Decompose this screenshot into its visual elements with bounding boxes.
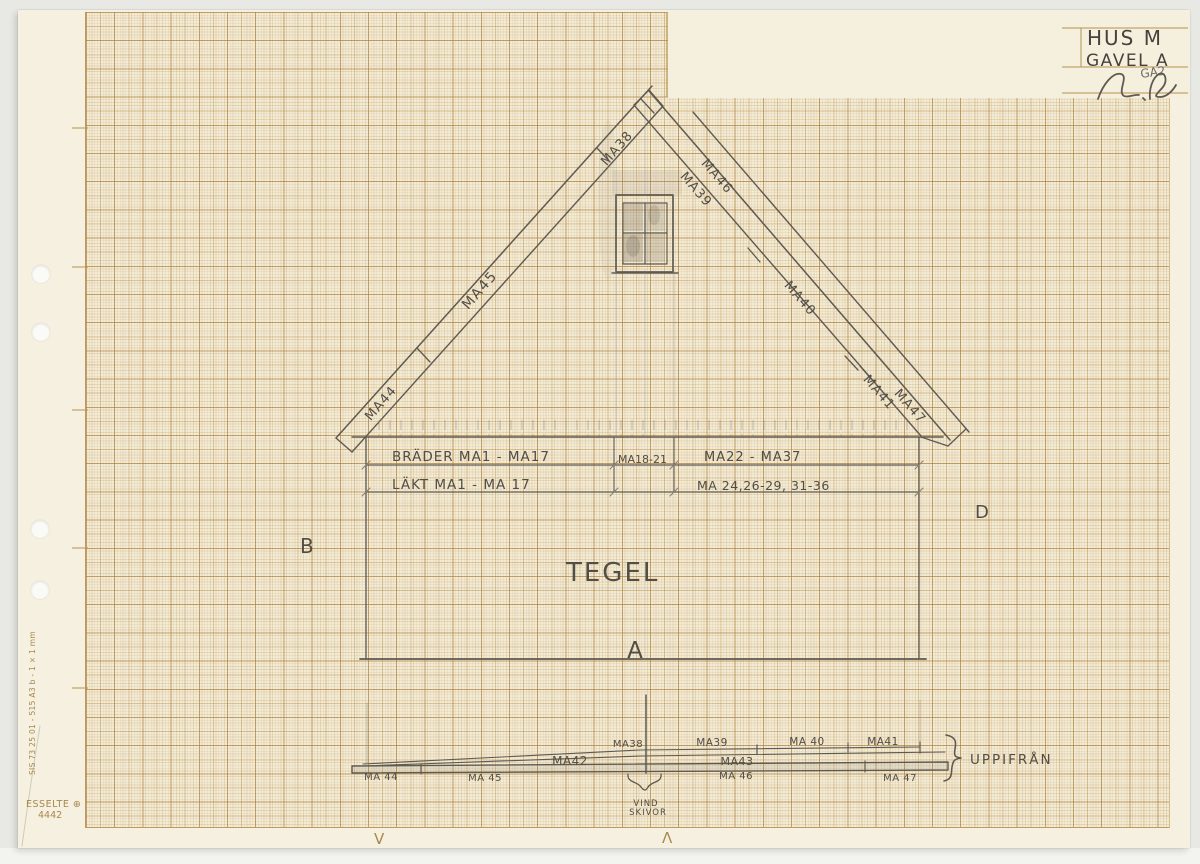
plan-label-ma41: MA41 (867, 736, 899, 748)
scanned-drawing-sheet: V Λ SIS 73 25 01 - 515 A3 b - 1 × 1 mm E… (0, 0, 1200, 864)
label-brader-row: BRÄDER MA1 - MA17 (392, 447, 550, 465)
plan-label-ma39: MA39 (696, 737, 728, 749)
plan-view: MA38 MA39 MA 40 MA41 MA42 MA43 MA 44 MA … (352, 695, 1053, 818)
label-ma40-roof: MA40 (781, 278, 819, 319)
plan-label-ma40: MA 40 (789, 736, 824, 748)
plan-label-ma46: MA 46 (719, 771, 753, 782)
label-ma45-roof: MA45 (459, 268, 501, 313)
plan-label-ma38: MA38 (613, 739, 643, 750)
drawing-overlay: V Λ SIS 73 25 01 - 515 A3 b - 1 × 1 mm E… (0, 0, 1200, 864)
label-tegel: TEGEL (565, 558, 659, 588)
label-ma22-37: MA22 - MA37 (704, 450, 801, 465)
title-block: HUS M GAVEL A GA2 (1086, 26, 1176, 100)
plan-view-label: UPPIFRÅN (970, 751, 1053, 768)
plan-label-ma47: MA 47 (883, 773, 917, 784)
fold-mark-right: Λ (662, 829, 673, 847)
board-end-hatching (368, 420, 918, 437)
title-line1: HUS M (1087, 26, 1163, 50)
label-ma24-36: MA 24,26-29, 31-36 (697, 478, 830, 493)
plan-note-line2: SKIVOR (629, 808, 667, 818)
attic-window (598, 120, 682, 280)
marker-a: A (627, 638, 643, 664)
label-ma41-roof: MA41 (860, 372, 898, 413)
marker-d: D (975, 502, 989, 523)
fold-mark-left: V (374, 830, 385, 848)
roof-rafters: MA38 MA45 MA44 MA46 MA39 MA40 MA41 MA47 (336, 86, 969, 452)
paper-brand-number: 4442 (38, 810, 62, 821)
plan-label-ma42: MA42 (552, 754, 588, 768)
plan-label-ma43: MA43 (720, 755, 753, 768)
label-lakt-row: LÄKT MA1 - MA 17 (392, 475, 531, 493)
plan-label-ma45: MA 45 (468, 773, 502, 784)
paper-brand: ESSELTE ⊕ (26, 799, 81, 810)
label-ma18-21: MA18-21 (618, 453, 667, 466)
plan-label-ma44: MA 44 (364, 772, 398, 783)
marker-b: B (300, 534, 314, 558)
title-annotation: GA2 (1139, 64, 1166, 81)
